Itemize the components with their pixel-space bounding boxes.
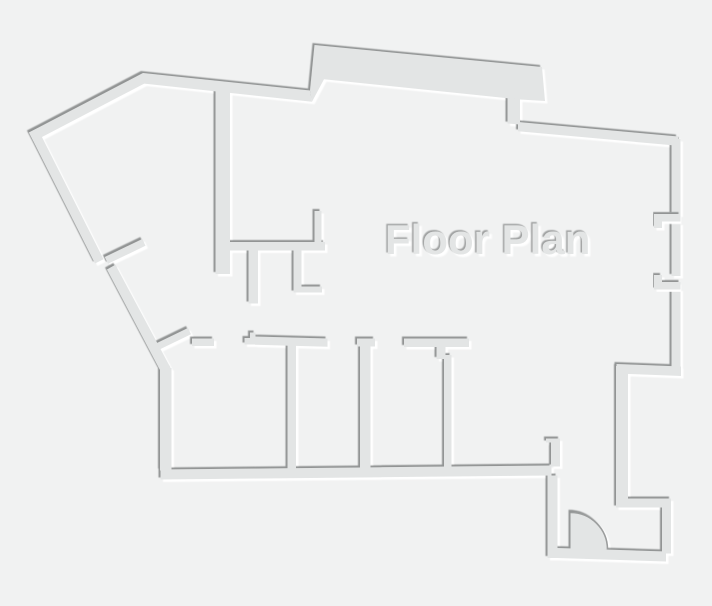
svg-text:Floor Plan: Floor Plan: [385, 216, 590, 263]
